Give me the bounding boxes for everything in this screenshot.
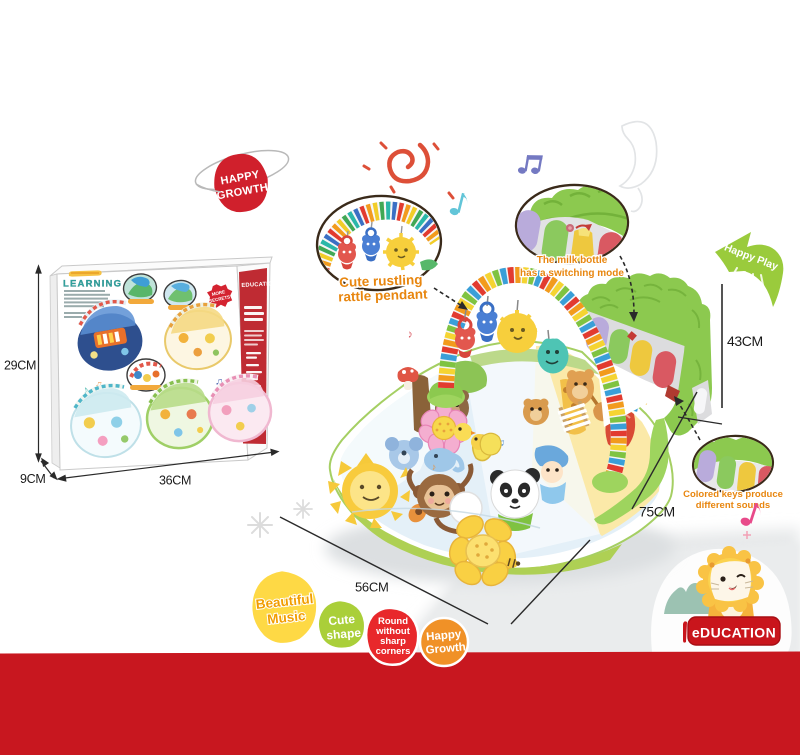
svg-text:eDUCATION: eDUCATION xyxy=(692,625,776,641)
svg-text:56CM: 56CM xyxy=(355,580,388,595)
svg-text:LEARNING: LEARNING xyxy=(63,279,122,290)
svg-text:rattle pendant: rattle pendant xyxy=(338,286,428,304)
svg-text:43CM: 43CM xyxy=(727,333,763,349)
svg-text:corners: corners xyxy=(376,646,411,657)
svg-text:different sounds: different sounds xyxy=(696,500,770,511)
svg-text:75CM: 75CM xyxy=(639,504,675,520)
svg-text:29CM: 29CM xyxy=(4,359,36,373)
svg-text:36CM: 36CM xyxy=(159,474,191,488)
svg-text:9CM: 9CM xyxy=(20,472,46,486)
svg-text:The milk bottle: The milk bottle xyxy=(537,255,608,266)
svg-text:Colored keys produce: Colored keys produce xyxy=(683,489,783,500)
svg-text:has a switching mode: has a switching mode xyxy=(520,268,624,279)
